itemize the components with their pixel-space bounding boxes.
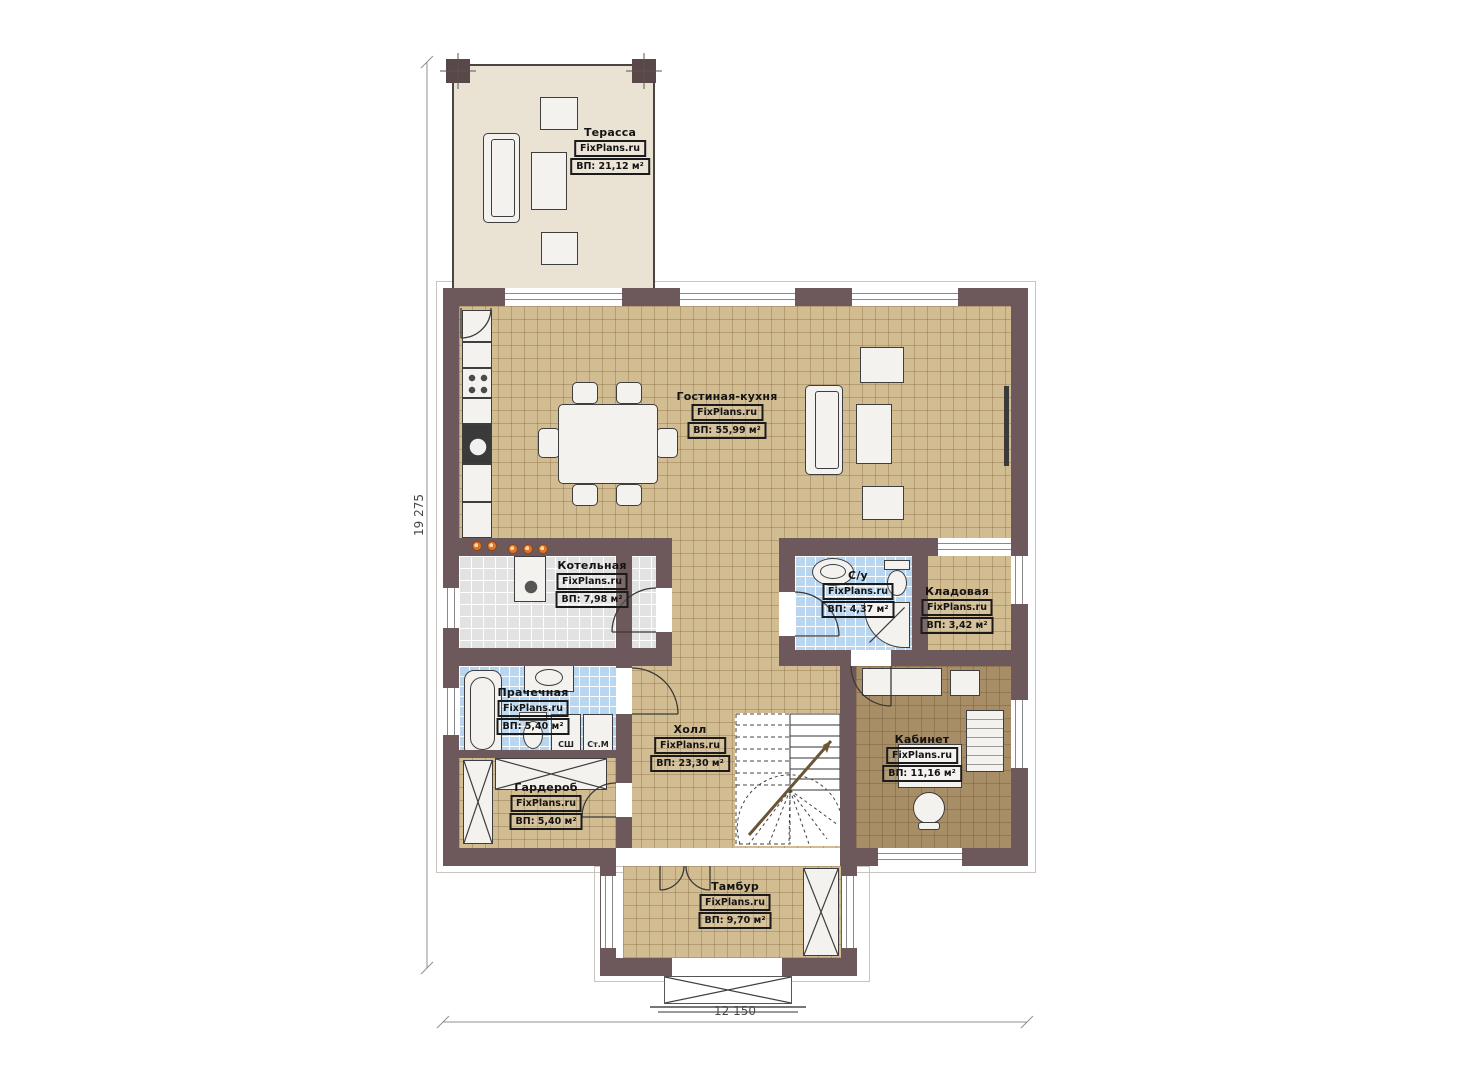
living-armchair — [860, 347, 904, 383]
room-label-office: Кабинет FixPlans.ru ВП: 11,16 м² — [882, 733, 962, 782]
wall-boiler-bottom — [459, 648, 672, 666]
office-chair-back — [918, 822, 940, 830]
room-label-vestibule: Тамбур FixPlans.ru ВП: 9,70 м² — [699, 880, 772, 929]
window-top-center — [680, 288, 795, 306]
dining-chair — [538, 428, 560, 458]
bar-stool — [472, 541, 482, 551]
watermark: FixPlans.ru — [574, 140, 646, 157]
door-gap-boiler — [656, 588, 672, 632]
kitchen-fridge — [462, 310, 492, 342]
door-gap-office — [851, 650, 891, 666]
living-sofa — [805, 385, 843, 475]
room-area: ВП: 5,40 м² — [497, 718, 570, 735]
terrace-column — [632, 59, 656, 83]
kitchen-cabinet — [462, 502, 492, 538]
vestibule-closet — [803, 868, 839, 956]
dining-table — [558, 404, 658, 484]
room-label-bathroom: С/у FixPlans.ru ВП: 4,37 м² — [822, 569, 895, 618]
window-boiler — [443, 588, 459, 628]
opening-storage-top — [938, 538, 1011, 556]
door-gap-bathroom — [779, 592, 795, 636]
office-sofa — [862, 668, 942, 696]
room-area: ВП: 11,16 м² — [882, 765, 962, 782]
window-vestibule-left — [601, 876, 616, 948]
dimension-height: 19 275 — [412, 494, 426, 536]
terrace-sofa — [483, 133, 520, 223]
room-name: Гостиная-кухня — [676, 390, 777, 403]
watermark: FixPlans.ru — [822, 583, 894, 600]
room-label-hall: Холл FixPlans.ru ВП: 23,30 м² — [650, 723, 730, 772]
room-name: Кладовая — [925, 585, 989, 598]
wardrobe-unit-left — [463, 760, 493, 844]
room-name: Котельная — [557, 559, 626, 572]
room-area: ВП: 5,40 м² — [510, 813, 583, 830]
room-label-terrace: Терасса FixPlans.ru ВП: 21,12 м² — [570, 126, 650, 175]
room-name: Гардероб — [514, 781, 577, 794]
tv-panel — [1004, 386, 1009, 466]
room-area: ВП: 4,37 м² — [822, 601, 895, 618]
door-gap-vestibule — [660, 848, 710, 866]
boiler-unit — [514, 556, 546, 602]
window-vestibule-right — [842, 876, 857, 948]
watermark: FixPlans.ru — [921, 599, 993, 616]
watermark: FixPlans.ru — [556, 573, 628, 590]
window-office-bottom — [878, 848, 962, 866]
watermark: FixPlans.ru — [510, 795, 582, 812]
room-name: Холл — [674, 723, 707, 736]
dimension-width: 12 150 — [714, 1004, 756, 1018]
window-top-right — [852, 288, 958, 306]
window-office — [1011, 700, 1028, 768]
room-area: ВП: 7,98 м² — [556, 591, 629, 608]
wall-hall-office — [840, 666, 856, 848]
room-name: Тамбур — [711, 880, 759, 893]
wall-middle-lower — [779, 650, 1028, 666]
watermark: FixPlans.ru — [699, 894, 771, 911]
dryer-label: СШ — [552, 740, 580, 749]
wall-left — [443, 288, 459, 866]
room-area: ВП: 23,30 м² — [650, 755, 730, 772]
room-area: ВП: 9,70 м² — [699, 912, 772, 929]
room-label-laundry: Прачечная FixPlans.ru ВП: 5,40 м² — [497, 686, 570, 735]
kitchen-oven — [462, 398, 492, 424]
watermark: FixPlans.ru — [497, 700, 569, 717]
living-coffee-table — [856, 404, 892, 464]
staircase — [735, 713, 841, 846]
bar-stool — [508, 544, 518, 554]
room-name: С/у — [848, 569, 868, 582]
dining-chair — [572, 382, 598, 404]
bar-stool — [538, 544, 548, 554]
washer-label: Ст.М — [584, 740, 612, 749]
terrace-door-window — [505, 288, 622, 306]
terrace-coffee-table — [531, 152, 567, 210]
room-label-storage: Кладовая FixPlans.ru ВП: 3,42 м² — [921, 585, 994, 634]
door-gap-laundry — [616, 668, 632, 714]
watermark: FixPlans.ru — [654, 737, 726, 754]
kitchen-stove — [462, 368, 492, 398]
bar-stool — [487, 541, 497, 551]
door-gap-wardrobe — [616, 783, 632, 817]
bar-stool — [523, 544, 533, 554]
room-name: Прачечная — [498, 686, 569, 699]
entry-door-gap — [672, 958, 782, 976]
room-area: ВП: 21,12 м² — [570, 158, 650, 175]
terrace-armchair — [541, 232, 578, 265]
window-storage — [1011, 556, 1028, 604]
floor-plan: СШ Ст.М — [0, 0, 1473, 1080]
office-chair — [913, 792, 945, 824]
room-area: ВП: 3,42 м² — [921, 617, 994, 634]
terrace-column — [446, 59, 470, 83]
entry-porch — [664, 976, 792, 1004]
kitchen-sink — [462, 424, 492, 464]
room-name: Кабинет — [895, 733, 950, 746]
watermark: FixPlans.ru — [886, 747, 958, 764]
washer: Ст.М — [583, 714, 613, 752]
wall-laundry-wardrobe — [459, 750, 616, 758]
dining-chair — [656, 428, 678, 458]
room-label-boiler: Котельная FixPlans.ru ВП: 7,98 м² — [556, 559, 629, 608]
office-bookshelf — [966, 710, 1004, 772]
room-area: ВП: 55,99 м² — [687, 422, 767, 439]
window-laundry — [443, 688, 459, 735]
room-label-wardrobe: Гардероб FixPlans.ru ВП: 5,40 м² — [510, 781, 583, 830]
dining-chair — [572, 484, 598, 506]
kitchen-cabinet — [462, 464, 492, 502]
dining-chair — [616, 484, 642, 506]
kitchen-cabinet — [462, 342, 492, 368]
wall-living-middle-right — [779, 538, 938, 556]
dining-chair — [616, 382, 642, 404]
room-label-living-kitchen: Гостиная-кухня FixPlans.ru ВП: 55,99 м² — [676, 390, 777, 439]
watermark: FixPlans.ru — [691, 404, 763, 421]
room-name: Терасса — [584, 126, 636, 139]
wall-bottom-left — [443, 848, 616, 866]
living-armchair — [862, 486, 904, 520]
office-armchair — [950, 670, 980, 696]
